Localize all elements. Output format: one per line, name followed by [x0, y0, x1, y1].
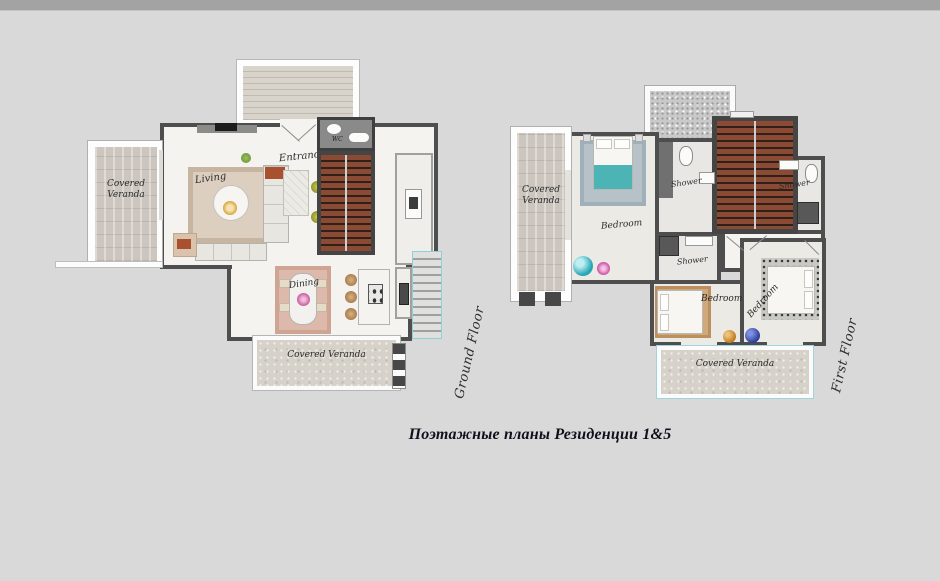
shower-tray [659, 236, 679, 256]
nightstand [635, 134, 643, 142]
pillow [804, 270, 813, 288]
pillow [614, 139, 630, 149]
covered-veranda-label: Covered Veranda [517, 133, 565, 208]
pillow [660, 294, 669, 311]
stair-rail [345, 155, 347, 251]
veranda-step-ledge [55, 261, 163, 268]
nightstand [583, 134, 591, 142]
oven [399, 283, 409, 305]
bed [657, 290, 703, 334]
wc-label: WC [332, 136, 343, 144]
floor-plan-image: Covered Veranda Living Entrance WC [0, 0, 940, 581]
decor-plate [223, 201, 237, 215]
toilet [679, 146, 693, 166]
bar-stool [345, 291, 357, 303]
covered-veranda-left: Covered Veranda [517, 133, 565, 291]
outdoor-staircase [412, 251, 442, 339]
double-sink [685, 236, 713, 246]
covered-veranda-label: Covered Veranda [95, 147, 157, 202]
covered-veranda-bottom: Covered Veranda [657, 346, 813, 398]
planter-boxes [392, 343, 406, 389]
planter-box [545, 292, 561, 306]
shower-tray [797, 202, 819, 224]
kitchen-counter-lower [395, 267, 412, 319]
bedroom-label: Bedroom [701, 294, 742, 305]
plant [241, 153, 251, 163]
stair-notch [730, 111, 754, 118]
veranda-sliding-door [565, 170, 571, 240]
bar-stool [345, 308, 357, 320]
stairwell [712, 116, 798, 234]
staircase [317, 151, 375, 255]
pillow [660, 314, 669, 331]
tv [215, 123, 237, 131]
kitchen-counter [395, 153, 433, 265]
console-table [283, 170, 309, 216]
sofa-bottom [195, 243, 267, 261]
pillow [804, 291, 813, 309]
planter-box [519, 292, 535, 306]
armchair-throw [177, 239, 191, 249]
page-caption: Поэтажные планы Резиденции 1&5 [370, 426, 710, 444]
kitchen-island [358, 269, 390, 325]
pouf-gold [723, 330, 736, 343]
top-border-strip [0, 0, 940, 11]
hob [368, 284, 383, 304]
first-floor-plan: Covered Veranda Bedroom Shower Shower Sh… [505, 80, 875, 410]
stair-rail [754, 121, 756, 229]
covered-veranda-label: Covered Veranda [257, 340, 396, 361]
sofa-throw [265, 167, 285, 179]
ground-floor-title: Ground Floor [450, 297, 489, 408]
pouf-blue [745, 328, 760, 343]
bed [593, 136, 633, 190]
veranda-sliding-door [159, 150, 163, 220]
wc-toilet [348, 132, 370, 143]
flower-centerpiece [297, 293, 310, 306]
accent-chair [573, 256, 593, 276]
covered-veranda-label: Covered Veranda [661, 350, 809, 370]
bar-stool [345, 274, 357, 286]
ground-floor-plan: Covered Veranda Living Entrance WC [55, 55, 455, 400]
flower-decor [597, 262, 610, 275]
dining-chair [316, 303, 327, 312]
sink [779, 160, 799, 170]
wc-sink [326, 123, 342, 135]
covered-veranda-left: Covered Veranda [95, 147, 157, 261]
bed-throw [594, 165, 632, 189]
pillow [596, 139, 612, 149]
appliance-panel [409, 197, 418, 209]
wc-room: WC [317, 117, 375, 151]
covered-veranda-bottom: Covered Veranda [253, 336, 400, 390]
